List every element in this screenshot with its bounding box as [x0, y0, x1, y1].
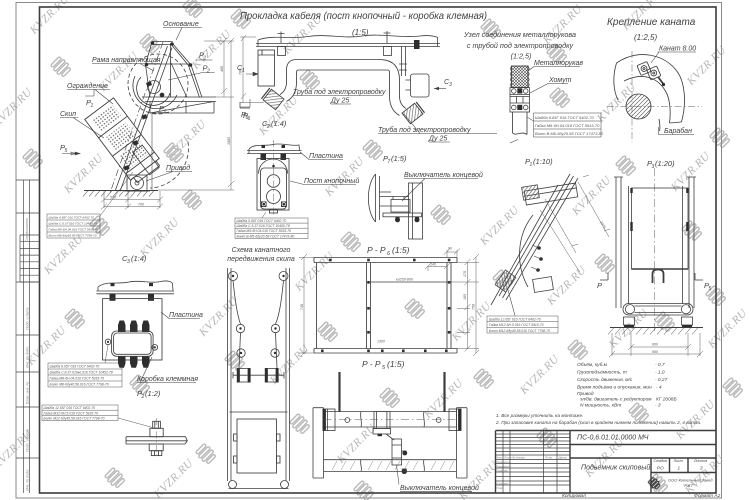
svg-text:700: 700	[138, 203, 144, 207]
svg-text:эл/дв. двигатель с редуктором: эл/дв. двигатель с редуктором	[580, 396, 652, 402]
svg-text:6: 6	[248, 116, 251, 122]
svg-text:P: P	[597, 281, 602, 290]
svg-text:(1:5): (1:5)	[387, 359, 405, 369]
svg-text:Грузоподъёмность, т: Грузоподъёмность, т	[577, 370, 627, 376]
svg-text:Проверил: Проверил	[496, 460, 510, 464]
svg-text:460: 460	[220, 66, 224, 72]
svg-text:Взам. инв. №: Взам. инв. №	[25, 382, 29, 404]
svg-text:Подп.: Подп.	[545, 456, 553, 460]
svg-text:Н.контр.: Н.контр.	[496, 482, 509, 486]
svg-text:1: 1	[678, 466, 681, 471]
svg-text:Ду 25: Ду 25	[428, 136, 447, 143]
svg-text:Рама направляющая: Рама направляющая	[92, 57, 161, 64]
svg-text:3: 3	[127, 259, 130, 265]
svg-text:Болт М8-6ду40.58.016 ГОСТ 7798: Болт М8-6ду40.58.016 ГОСТ 7798-70	[50, 383, 109, 387]
svg-text:740: 740	[300, 304, 304, 310]
svg-text:140: 140	[430, 263, 436, 267]
svg-text:Инв. № дубл.: Инв. № дубл.	[25, 346, 29, 368]
svg-text:Хомут: Хомут	[548, 77, 572, 84]
svg-text:2: 2	[266, 124, 270, 130]
svg-text:1300: 1300	[377, 340, 385, 344]
svg-text:Болт М6-6ду65.58 ГОСТ 7798-70: Болт М6-6ду65.58 ГОСТ 7798-70	[49, 234, 97, 238]
svg-text:- 1,0: - 1,0	[655, 370, 665, 376]
svg-text:Гайка М6-6Н.04.016 ГОСТ 5915-7: Гайка М6-6Н.04.016 ГОСТ 5915-70	[535, 123, 600, 128]
svg-text:ООО Котельный Завод: ООО Котельный Завод	[668, 478, 713, 483]
svg-text:Канат 8.00: Канат 8.00	[659, 46, 696, 53]
svg-text:Металлорукав: Металлорукав	[534, 60, 583, 67]
svg-text:кл250-800: кл250-800	[396, 278, 413, 282]
svg-text:90: 90	[448, 247, 452, 251]
svg-text:Согласованно: Согласованно	[25, 218, 29, 242]
svg-text:Труба под электропроводку: Труба под электропроводку	[293, 88, 386, 96]
svg-text:1005: 1005	[227, 137, 231, 145]
svg-text:Шайба 6.65Г 016 ГОСТ 6402-70: Шайба 6.65Г 016 ГОСТ 6402-70	[535, 115, 594, 120]
svg-text:КГ 2008Б: КГ 2008Б	[656, 396, 677, 402]
svg-text:Привод: Привод	[577, 391, 594, 397]
svg-text:N мощность, кВт: N мощность, кВт	[580, 403, 621, 409]
svg-text:2: 2	[141, 394, 145, 400]
svg-text:Основание: Основание	[163, 21, 199, 28]
svg-text:1475: 1475	[599, 221, 606, 230]
svg-text:6: 6	[387, 251, 391, 257]
svg-text:Болт М12-6ду40.58.016 ГОСТ 779: Болт М12-6ду40.58.016 ГОСТ 7798-70	[489, 329, 550, 333]
svg-text:Копировал: Копировал	[562, 493, 586, 499]
svg-text:5: 5	[382, 365, 386, 371]
svg-text:Объём, куб.м: Объём, куб.м	[577, 362, 608, 368]
svg-text:Лист: Лист	[673, 459, 683, 463]
svg-text:Барабан: Барабан	[664, 127, 692, 135]
svg-text:с трубой под электропроводку: с трубой под электропроводку	[467, 41, 574, 50]
svg-text:Шайба 12.65Г 016 ГОСТ 6402-70: Шайба 12.65Г 016 ГОСТ 6402-70	[489, 318, 541, 322]
svg-text:Шайба 6.65Г 016 ГОСТ 6402-70: Шайба 6.65Г 016 ГОСТ 6402-70	[49, 216, 95, 220]
svg-text:Ду 25: Ду 25	[330, 98, 349, 105]
svg-text:Листов: Листов	[693, 459, 707, 463]
svg-text:Гайка М12-6Н.5.016 ГОСТ 5915-7: Гайка М12-6Н.5.016 ГОСТ 5915-70	[489, 323, 544, 327]
svg-text:170: 170	[463, 271, 467, 277]
svg-text:3: 3	[449, 82, 452, 88]
svg-text:Гайка М6-6Н.04.016 ГОСТ 5915-7: Гайка М6-6Н.04.016 ГОСТ 5915-70	[49, 228, 99, 232]
svg-text:Т.контр.: Т.контр.	[496, 469, 508, 473]
svg-text:Шайба С.6.37.016 ГОСТ 10450-78: Шайба С.6.37.016 ГОСТ 10450-78	[49, 222, 98, 226]
svg-text:Шайба 5.65Г 016 ГОСТ 6402-70: Шайба 5.65Г 016 ГОСТ 6402-70	[237, 219, 287, 223]
svg-text:165: 165	[463, 294, 467, 300]
svg-text:Схема канатного: Схема канатного	[232, 247, 291, 254]
svg-text:Инв. № подл.: Инв. № подл.	[25, 469, 29, 491]
svg-text:Гайка М12-6Н.5.016 ГОСТ 5915-7: Гайка М12-6Н.5.016 ГОСТ 5915-70	[44, 411, 99, 415]
svg-text:600: 600	[652, 343, 658, 347]
svg-text:(1:20): (1:20)	[655, 159, 675, 168]
svg-text:2: 2	[206, 69, 210, 75]
svg-text:Привод: Привод	[166, 164, 190, 172]
svg-text:Коробка клеммная: Коробка клеммная	[137, 375, 198, 383]
svg-text:Шайба С.5.37.016 ГОСТ 10450-78: Шайба С.5.37.016 ГОСТ 10450-78	[237, 224, 290, 228]
svg-text:Подп. и дата: Подп. и дата	[25, 308, 29, 331]
svg-text:Шайба 8.65Г 016 ГОСТ 6402-70: Шайба 8.65Г 016 ГОСТ 6402-70	[50, 365, 100, 369]
svg-text:Узел соединения металлорукова: Узел соединения металлорукова	[463, 30, 576, 39]
svg-text:2. При запасовке каната на бар: 2. При запасовке каната на барабан (скип…	[495, 419, 701, 425]
svg-text:Прокладка кабеля (пост кнопочн: Прокладка кабеля (пост кнопочный - короб…	[240, 10, 487, 22]
svg-text:Винт В.М5-6ду20.58 ГОСТ 17473-: Винт В.М5-6ду20.58 ГОСТ 17473-80	[237, 234, 295, 238]
svg-text:(1:2,5): (1:2,5)	[634, 33, 657, 42]
svg-text:Гайка М5-6Н.04.016 ГОСТ 5915-7: Гайка М5-6Н.04.016 ГОСТ 5915-70	[237, 229, 292, 233]
svg-text:1: 1	[91, 103, 94, 109]
svg-text:- 0,7: - 0,7	[655, 362, 665, 368]
svg-text:1: 1	[242, 68, 245, 74]
svg-text:Винт В.М6-6ду25.58 ГОСТ 17473-: Винт В.М6-6ду25.58 ГОСТ 17473-80	[535, 131, 604, 136]
svg-text:Скорость движения, м/с: Скорость движения, м/с	[577, 377, 633, 383]
svg-text:Болт М12-6ду45.58.016 ГОСТ 779: Болт М12-6ду45.58.016 ГОСТ 7798-70	[44, 417, 105, 421]
svg-text:990: 990	[652, 350, 658, 354]
svg-text:Пластина: Пластина	[309, 153, 343, 160]
svg-text:Выключатель концевой: Выключатель концевой	[400, 484, 479, 492]
svg-text:Шайба 12.65Г 016 ГОСТ 6402-70: Шайба 12.65Г 016 ГОСТ 6402-70	[44, 406, 96, 410]
svg-text:Труба под электропроводку: Труба под электропроводку	[378, 126, 471, 134]
svg-text:1. Все размеры уточнить на мон: 1. Все размеры уточнить на монтаже.	[496, 413, 583, 418]
svg-text:Пластина: Пластина	[169, 312, 203, 319]
svg-text:Подп. и дата: Подп. и дата	[25, 430, 29, 453]
svg-text:(1:4): (1:4)	[271, 119, 287, 128]
svg-text:Выключатель концевой: Выключатель концевой	[404, 171, 483, 179]
svg-text:- 4: - 4	[656, 385, 662, 391]
svg-text:Гайка М8-6Н.04.016 ГОСТ 5915-7: Гайка М8-6Н.04.016 ГОСТ 5915-70	[50, 377, 105, 381]
svg-text:- 0,27: - 0,27	[655, 377, 668, 383]
svg-text:P - P: P - P	[362, 359, 381, 369]
svg-text:№ докум.: № докум.	[512, 456, 525, 460]
svg-text:5: 5	[709, 286, 712, 292]
svg-text:Скип: Скип	[60, 111, 76, 118]
svg-text:(1:5): (1:5)	[392, 245, 410, 255]
svg-text:Крепление каната: Крепление каната	[607, 17, 696, 28]
svg-text:3: 3	[700, 466, 703, 471]
svg-text:750: 750	[472, 304, 476, 310]
svg-text:Стадия: Стадия	[654, 459, 668, 463]
svg-text:(1:2,5): (1:2,5)	[511, 52, 532, 61]
svg-text:(1:5): (1:5)	[391, 154, 407, 163]
svg-text:1: 1	[204, 56, 207, 62]
svg-text:Подьемник скиповый: Подьемник скиповый	[581, 464, 650, 472]
svg-text:"РЖТ": "РЖТ"	[683, 483, 695, 488]
svg-text:1: 1	[164, 109, 167, 115]
svg-text:(1:2): (1:2)	[145, 389, 161, 398]
svg-text:Ограждение: Ограждение	[67, 82, 108, 90]
svg-text:(1:10): (1:10)	[533, 157, 553, 166]
svg-text:P - P: P - P	[367, 245, 386, 255]
svg-text:Изм: Изм	[496, 456, 502, 460]
svg-text:ПС-0,6.01.01.0000 МЧ: ПС-0,6.01.01.0000 МЧ	[577, 435, 649, 442]
svg-text:Утв.: Утв.	[496, 486, 503, 490]
svg-text:Лист: Лист	[503, 456, 512, 460]
svg-text:Формат А2: Формат А2	[694, 493, 721, 499]
svg-text:5: 5	[65, 148, 68, 154]
svg-text:передвижения скипа: передвижения скипа	[227, 255, 295, 263]
svg-text:Дата: Дата	[558, 456, 567, 460]
svg-text:Шайба С.8.37.016ке.016 ГОСТ 10: Шайба С.8.37.016ке.016 ГОСТ 10451-78	[50, 371, 113, 375]
svg-text:Время подъёма и опускания, мин: Время подъёма и опускания, мин	[577, 385, 652, 391]
svg-text:(1:4): (1:4)	[131, 254, 147, 263]
svg-text:- 3: - 3	[655, 403, 661, 409]
svg-text:Пост кнопочный: Пост кнопочный	[304, 177, 359, 185]
svg-text:РО: РО	[657, 466, 664, 471]
